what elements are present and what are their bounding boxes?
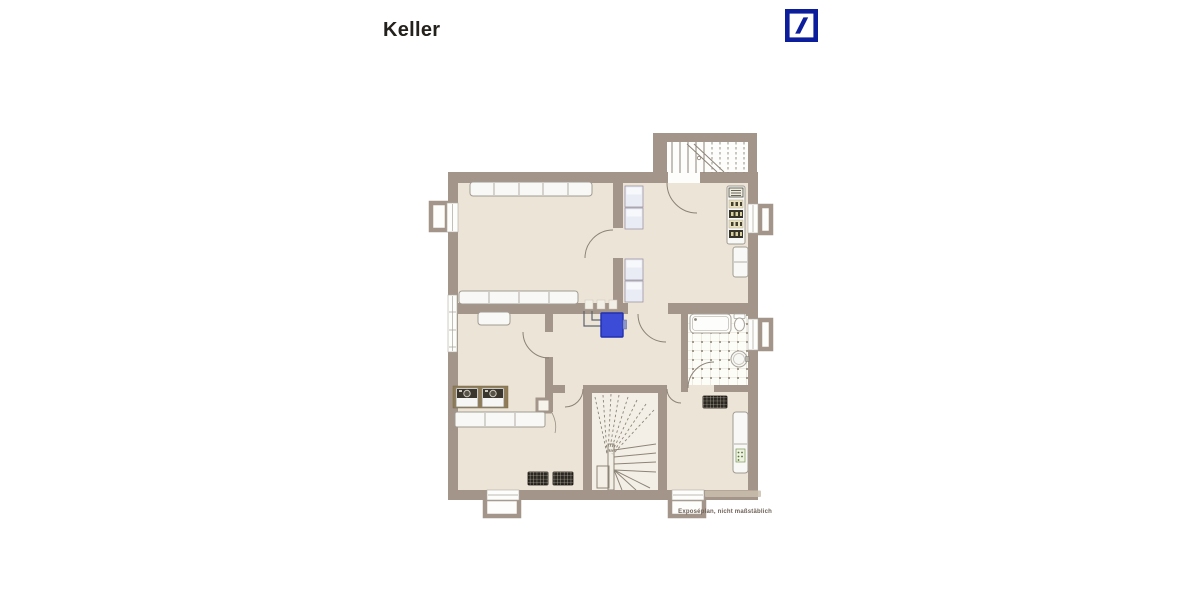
wall-bathroom-bottom xyxy=(714,385,758,392)
wall-niches xyxy=(585,300,617,309)
wall-storage-east-upper xyxy=(613,183,623,228)
counter-white xyxy=(455,412,545,427)
boiler xyxy=(601,313,623,337)
wall-annex-right xyxy=(748,133,757,183)
wall-laundry-east-upper xyxy=(545,314,553,332)
light-well-right-lower xyxy=(760,320,771,349)
freezer-cabinet xyxy=(733,247,748,277)
side-table xyxy=(478,312,510,325)
tall-cabinet xyxy=(733,412,748,473)
window-bottom-left xyxy=(487,490,519,500)
washing-machine xyxy=(456,388,478,407)
light-well-right-upper xyxy=(760,206,771,233)
plan-caption: Exposéplan, nicht maßstäblich xyxy=(600,509,772,515)
bottle-rack xyxy=(727,186,745,244)
washing-machine xyxy=(482,388,504,407)
toilet xyxy=(734,314,745,331)
wall-annex-top xyxy=(653,133,757,142)
light-well-bottom-left xyxy=(485,499,519,516)
shelf-bottom xyxy=(459,291,578,304)
wall-storage-east-lower xyxy=(613,258,623,304)
wall-annex-left xyxy=(653,133,667,183)
window-bathroom xyxy=(748,319,758,350)
floorplan-page: Keller xyxy=(0,0,1200,600)
wall-bathroom-top xyxy=(681,303,748,314)
wall-top xyxy=(448,172,668,183)
bathtub xyxy=(690,314,731,333)
window-left-upper xyxy=(447,203,458,232)
wall-bathroom-left xyxy=(681,314,688,392)
crate xyxy=(736,449,745,462)
window-right-upper xyxy=(748,204,758,233)
wall-stairwell-top xyxy=(592,385,658,393)
light-well-left xyxy=(431,203,447,230)
window-left-lower xyxy=(448,295,457,352)
wall-stairwell-left xyxy=(583,385,592,490)
chimney-flue xyxy=(537,399,550,412)
shelf-top xyxy=(470,182,592,196)
wall-stairwell-right xyxy=(658,385,667,490)
window-bottom-right xyxy=(672,490,704,500)
wall-watermark xyxy=(705,491,761,498)
